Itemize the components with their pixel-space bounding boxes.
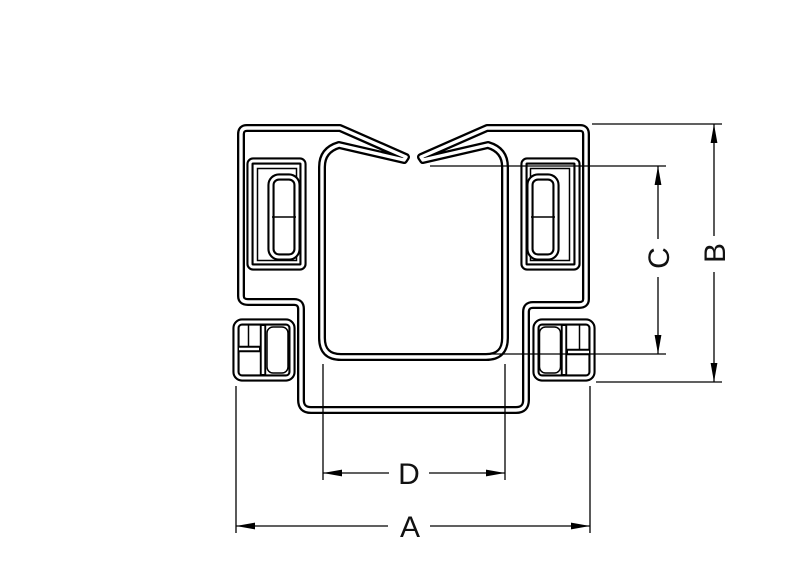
dimension-c-arrow-top [655, 166, 662, 185]
dimension-a-arrow-right [571, 523, 590, 530]
right-lower-tab [536, 322, 592, 378]
dimension-c-arrow-bottom [655, 335, 662, 354]
dimension-a-label: A [400, 511, 420, 544]
left-tab-inner-window [267, 327, 288, 373]
left-lower-tab [236, 322, 292, 378]
technical-drawing-canvas: A D C B [0, 0, 800, 576]
dimension-d: D [323, 364, 505, 491]
dimension-d-arrow-right [486, 470, 505, 477]
right-embossment-bevel [531, 169, 570, 261]
clip-profile-drawing: A D C B [0, 0, 800, 576]
dimension-c-label: C [643, 247, 676, 269]
left-embossment-bevel [258, 169, 297, 261]
dimension-d-label: D [398, 458, 420, 491]
dimension-d-arrow-left [323, 470, 342, 477]
dimension-b-arrow-bottom [711, 363, 718, 382]
left-embossment [250, 161, 303, 267]
dimension-a-arrow-left [236, 523, 255, 530]
dimension-b-arrow-top [711, 124, 718, 143]
dimension-b-label: B [699, 243, 732, 263]
right-embossment [524, 161, 577, 267]
right-tab-inner-window [540, 327, 561, 373]
